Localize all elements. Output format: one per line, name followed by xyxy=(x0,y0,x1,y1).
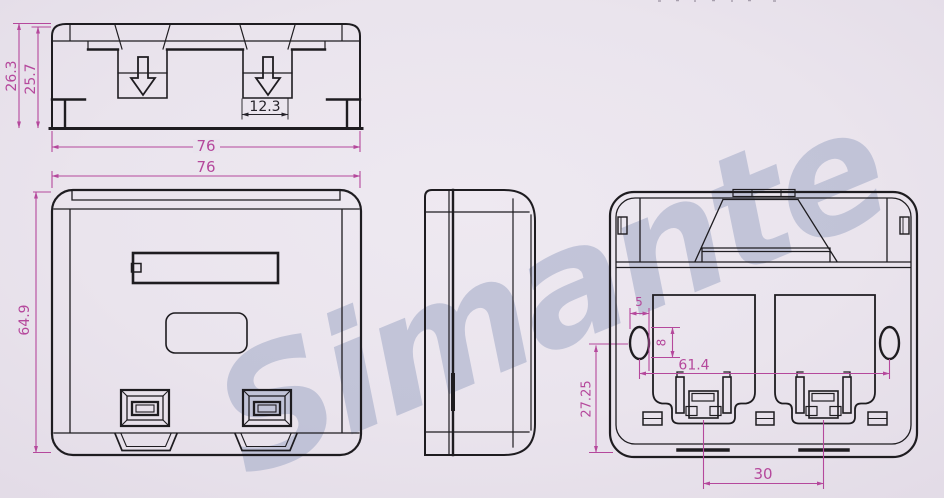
overall-depth-label: 26.3 xyxy=(4,60,20,91)
latch-spacing-label: 30 xyxy=(753,465,772,483)
port-height-label: 27.25 xyxy=(580,380,595,417)
front-width-label: 76 xyxy=(196,158,215,176)
hole-spacing-label: 61.4 xyxy=(678,358,709,374)
drawing-page: Simante 12.3 26.3 25.7 76 xyxy=(0,0,944,498)
slot-length-label: 8 xyxy=(655,339,669,347)
technical-drawing: Simante 12.3 26.3 25.7 76 xyxy=(0,0,944,498)
slot-offset-label: 5 xyxy=(635,295,643,309)
body-depth-label: 25.7 xyxy=(23,63,39,94)
top-width-label: 76 xyxy=(196,137,215,155)
front-height-label: 64.9 xyxy=(17,304,33,335)
slot-width-label: 12.3 xyxy=(249,99,280,115)
